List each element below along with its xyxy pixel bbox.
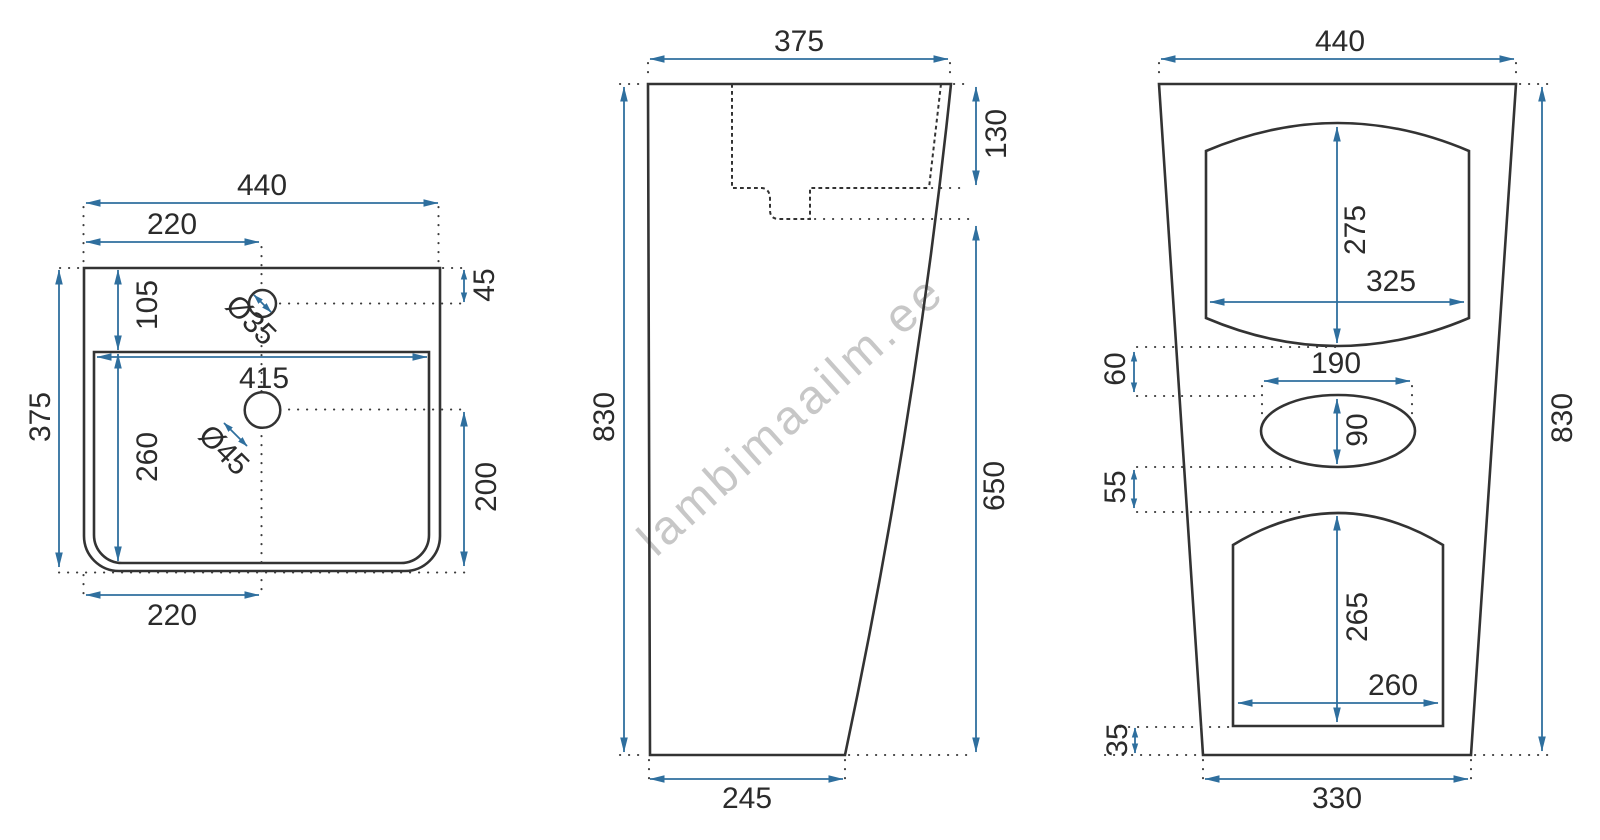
- svg-text:220: 220: [147, 599, 197, 632]
- svg-text:90: 90: [1341, 413, 1374, 446]
- svg-text:55: 55: [1099, 470, 1132, 503]
- svg-text:325: 325: [1366, 265, 1416, 298]
- svg-text:200: 200: [470, 462, 503, 512]
- svg-text:275: 275: [1339, 205, 1372, 255]
- svg-text:130: 130: [980, 109, 1013, 159]
- svg-text:60: 60: [1099, 352, 1132, 385]
- svg-text:375: 375: [24, 392, 57, 442]
- svg-text:105: 105: [131, 280, 164, 330]
- svg-text:260: 260: [1368, 669, 1418, 702]
- svg-text:830: 830: [588, 392, 621, 442]
- svg-text:650: 650: [978, 461, 1011, 511]
- svg-text:375: 375: [774, 25, 824, 58]
- svg-text:265: 265: [1341, 592, 1374, 642]
- svg-text:35: 35: [1101, 723, 1134, 756]
- svg-text:245: 245: [722, 782, 772, 815]
- svg-text:440: 440: [237, 169, 287, 202]
- svg-text:440: 440: [1315, 25, 1365, 58]
- svg-text:830: 830: [1546, 393, 1579, 443]
- svg-text:330: 330: [1312, 782, 1362, 815]
- svg-text:190: 190: [1311, 347, 1361, 380]
- svg-text:415: 415: [239, 362, 289, 395]
- svg-text:260: 260: [131, 432, 164, 482]
- svg-text:220: 220: [147, 208, 197, 241]
- svg-text:45: 45: [468, 268, 501, 301]
